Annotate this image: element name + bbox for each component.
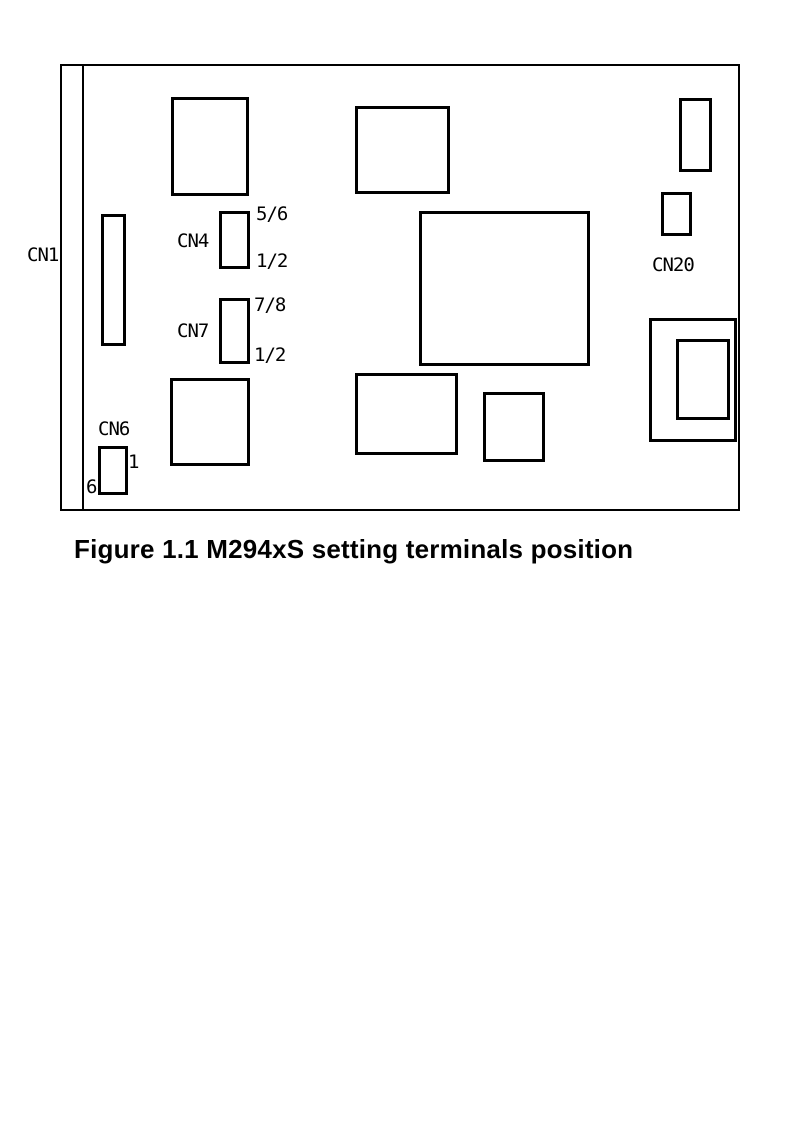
connector-cn4-rect [219, 211, 250, 269]
component-rect-bottom-middle [355, 373, 458, 455]
label-cn4-pin56: 5/6 [256, 205, 287, 224]
connector-cn7-rect [219, 298, 250, 364]
component-rect-top-right [679, 98, 712, 172]
component-rect-top-left [171, 97, 249, 196]
document-page: CN1CN45/61/2CN77/81/2CN616CN20 Figure 1.… [0, 0, 794, 1123]
component-rect-top-middle [355, 106, 450, 194]
label-cn6-pin6: 6 [86, 478, 96, 497]
component-rect-bottom-left [170, 378, 250, 466]
card-edge-line [82, 64, 84, 511]
label-cn4-pin12: 1/2 [256, 252, 287, 271]
label-cn20: CN20 [652, 256, 694, 275]
component-rect-bottom-small [483, 392, 545, 462]
label-cn4: CN4 [177, 232, 208, 251]
connector-cn6-rect [98, 446, 128, 495]
component-ic-center [419, 211, 590, 366]
label-cn6-pin1: 1 [128, 453, 138, 472]
connector-cn20-rect [661, 192, 692, 236]
label-cn1: CN1 [27, 246, 58, 265]
figure-caption: Figure 1.1 M294xS setting terminals posi… [74, 535, 633, 563]
label-cn7: CN7 [177, 322, 208, 341]
component-rect-bottom-right-inner [676, 339, 730, 420]
label-cn6: CN6 [98, 420, 129, 439]
connector-cn1-rect [101, 214, 126, 346]
label-cn7-pin12: 1/2 [254, 346, 285, 365]
label-cn7-pin78: 7/8 [254, 296, 285, 315]
